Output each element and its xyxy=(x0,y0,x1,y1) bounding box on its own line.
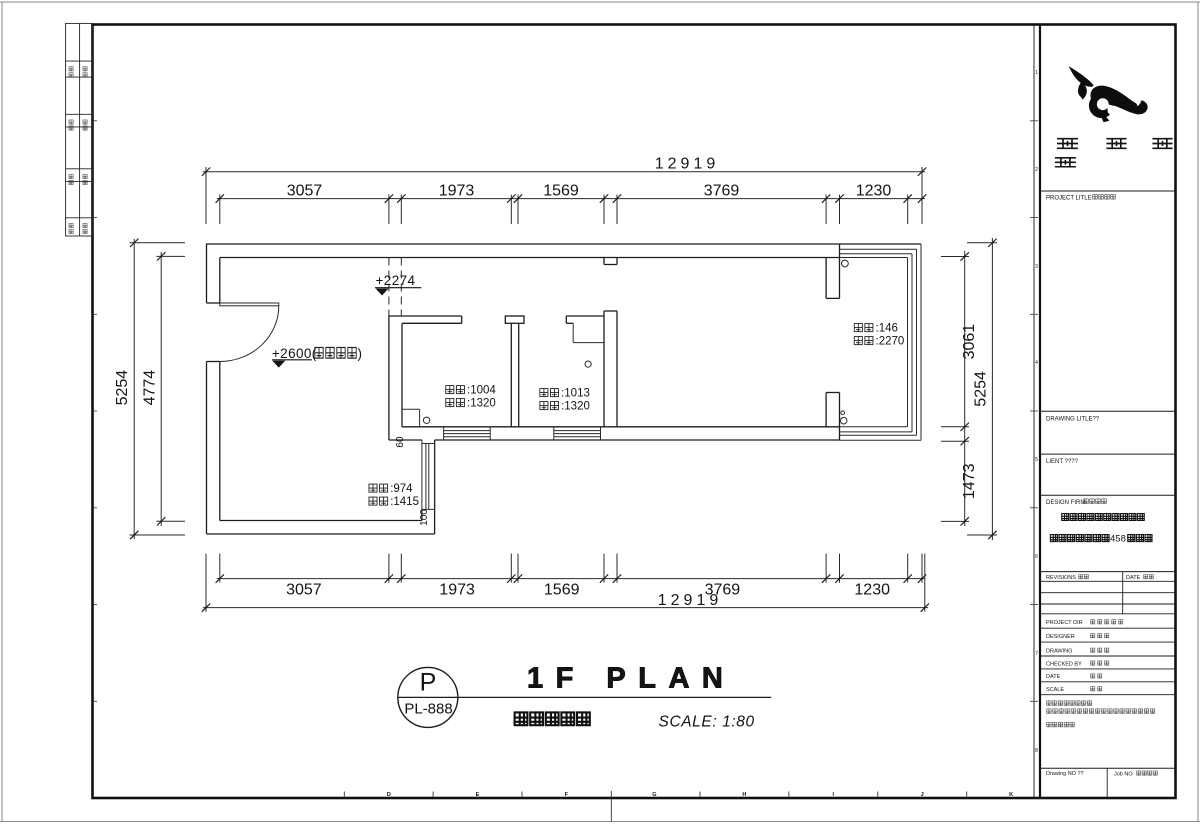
svg-text:G: G xyxy=(652,792,656,798)
svg-text:4774: 4774 xyxy=(142,370,159,406)
svg-text:D: D xyxy=(387,792,391,798)
svg-text:LIENT ????: LIENT ???? xyxy=(1046,459,1079,465)
svg-text:12919: 12919 xyxy=(655,156,720,173)
svg-text:Drawing NO ??: Drawing NO ?? xyxy=(1046,771,1084,777)
svg-text:1569: 1569 xyxy=(544,582,580,599)
svg-text::1013: :1013 xyxy=(561,388,590,400)
svg-text::146: :146 xyxy=(876,323,898,335)
svg-text:6: 6 xyxy=(1035,554,1038,560)
svg-text:3057: 3057 xyxy=(286,582,322,599)
svg-text:PL-888: PL-888 xyxy=(404,701,452,718)
svg-text:5254: 5254 xyxy=(114,370,131,406)
svg-text:CHECKED BY: CHECKED BY xyxy=(1046,661,1082,667)
svg-text::1320: :1320 xyxy=(561,401,590,413)
svg-text:): ) xyxy=(358,346,363,361)
svg-text:E: E xyxy=(476,792,480,798)
svg-text::2270: :2270 xyxy=(876,336,905,348)
svg-text:1230: 1230 xyxy=(856,183,892,200)
svg-text:K: K xyxy=(1009,792,1013,798)
svg-text:PROJECT DIR: PROJECT DIR xyxy=(1046,620,1083,626)
svg-text:REVISIONS: REVISIONS xyxy=(1046,575,1076,581)
svg-text:60: 60 xyxy=(395,436,406,448)
svg-text:458: 458 xyxy=(1110,534,1126,545)
svg-text:1973: 1973 xyxy=(439,183,475,200)
svg-text:PROJECT LITLE: PROJECT LITLE xyxy=(1046,196,1092,202)
svg-text:+2600(: +2600( xyxy=(272,346,317,361)
svg-text:3: 3 xyxy=(1035,264,1038,270)
svg-text:DRAWING: DRAWING xyxy=(1046,648,1072,654)
svg-text::1415: :1415 xyxy=(390,496,419,508)
svg-text:1230: 1230 xyxy=(854,582,890,599)
svg-text:8: 8 xyxy=(1035,748,1038,754)
svg-text:DESIGNER: DESIGNER xyxy=(1046,634,1075,640)
svg-text:DESIGN FIRM: DESIGN FIRM xyxy=(1046,500,1085,506)
svg-text:1: 1 xyxy=(1035,70,1038,76)
svg-text:100: 100 xyxy=(419,509,430,526)
svg-text:P: P xyxy=(420,669,437,697)
svg-text::1004: :1004 xyxy=(467,385,496,397)
svg-text:1F PLAN: 1F PLAN xyxy=(527,663,735,695)
svg-text:3769: 3769 xyxy=(704,183,740,200)
svg-text:5: 5 xyxy=(1035,457,1038,463)
svg-text:7: 7 xyxy=(1035,651,1038,657)
svg-text:SCALE: 1:80: SCALE: 1:80 xyxy=(659,714,755,731)
svg-text:1473: 1473 xyxy=(961,463,978,499)
svg-text:1973: 1973 xyxy=(439,582,475,599)
svg-text:Job NO: Job NO xyxy=(1114,772,1133,778)
svg-text:2: 2 xyxy=(1035,167,1038,173)
svg-text:4: 4 xyxy=(1035,360,1038,366)
svg-text:DATE: DATE xyxy=(1046,674,1061,680)
svg-text:J: J xyxy=(921,792,924,798)
svg-text:12919: 12919 xyxy=(658,592,723,609)
svg-text:DRAWING LITLE??: DRAWING LITLE?? xyxy=(1046,417,1100,423)
svg-text:3057: 3057 xyxy=(287,183,323,200)
svg-text::974: :974 xyxy=(390,483,413,495)
svg-text:DATE: DATE xyxy=(1126,575,1141,581)
svg-text:1569: 1569 xyxy=(543,183,579,200)
svg-text:+2274: +2274 xyxy=(376,273,416,288)
svg-text:3061: 3061 xyxy=(961,324,978,360)
svg-text:H: H xyxy=(742,792,746,798)
svg-text:SCALE: SCALE xyxy=(1046,687,1064,693)
svg-text::1320: :1320 xyxy=(467,398,496,410)
svg-text:5254: 5254 xyxy=(973,371,990,407)
